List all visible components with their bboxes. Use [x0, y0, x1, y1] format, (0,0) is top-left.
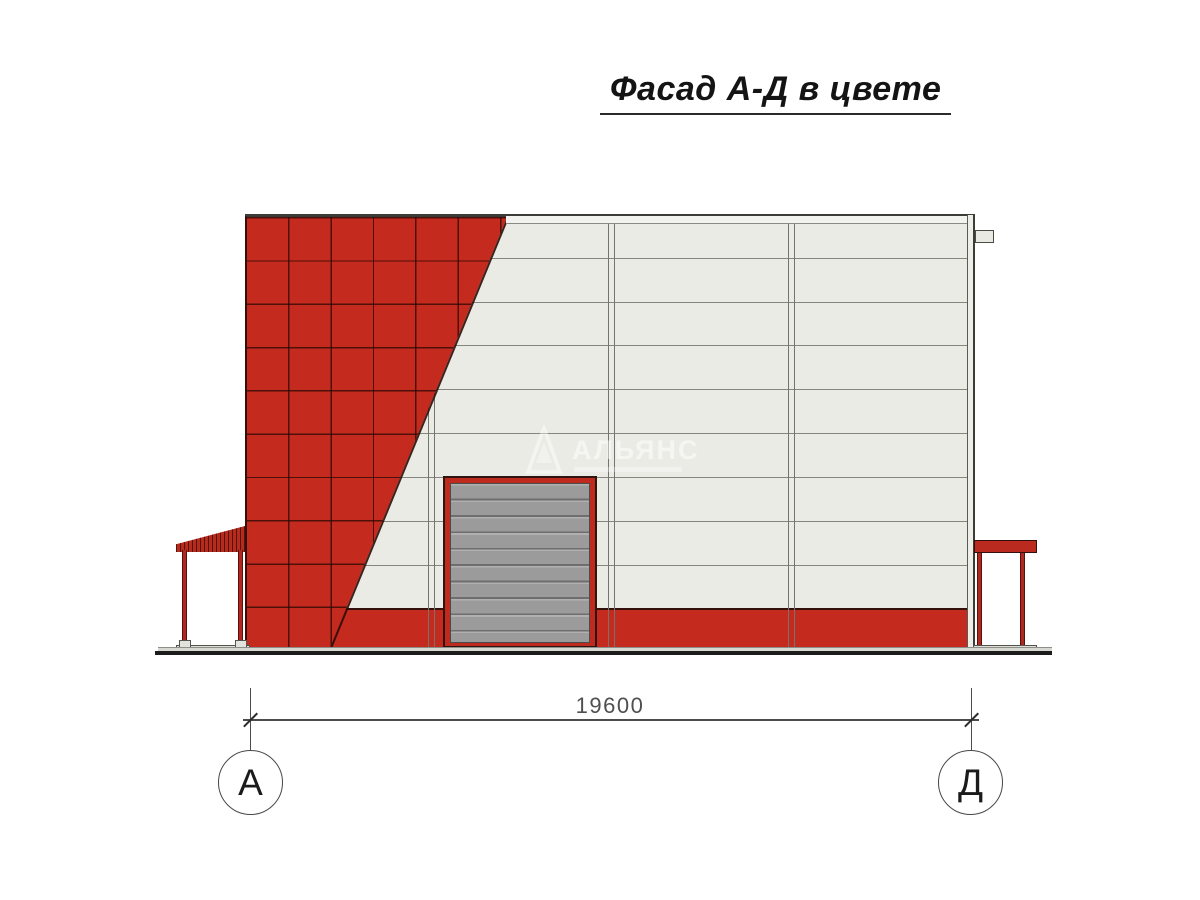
left-canopy-post [238, 550, 243, 646]
wall-mullion-joint [788, 224, 795, 648]
left-canopy-roof [176, 526, 245, 552]
axis-label-d: Д [958, 762, 983, 804]
drawing-title-row: Фасад А-Д в цвете [0, 70, 1200, 120]
axis-bubble-d: Д [938, 750, 1003, 815]
facade-red-plinth [245, 608, 967, 648]
gate-slat-panel [450, 483, 590, 643]
sectional-gate [443, 476, 597, 648]
axis-bubble-a: А [218, 750, 283, 815]
dimension-line [243, 719, 979, 720]
roof-parapet-band [506, 216, 975, 225]
roof-drain-outlet [975, 230, 994, 243]
drawing-title: Фасад А-Д в цвете [600, 70, 951, 115]
right-corner-edge-band [967, 215, 975, 648]
ground-line [155, 651, 1052, 655]
right-canopy-post [977, 553, 982, 647]
facade-drawing-canvas: Фасад А-Д в цвете 19600 [0, 0, 1200, 900]
watermark-subtitle-bar [574, 467, 682, 472]
watermark: АЛЬЯНС [524, 423, 704, 477]
watermark-logo-icon [524, 425, 564, 475]
axis-label-a: А [238, 762, 263, 804]
watermark-text: АЛЬЯНС [572, 435, 700, 466]
left-canopy-post [182, 550, 187, 646]
right-canopy-roof [974, 540, 1037, 553]
right-canopy-post [1020, 553, 1025, 647]
dimension-value: 19600 [555, 693, 665, 719]
